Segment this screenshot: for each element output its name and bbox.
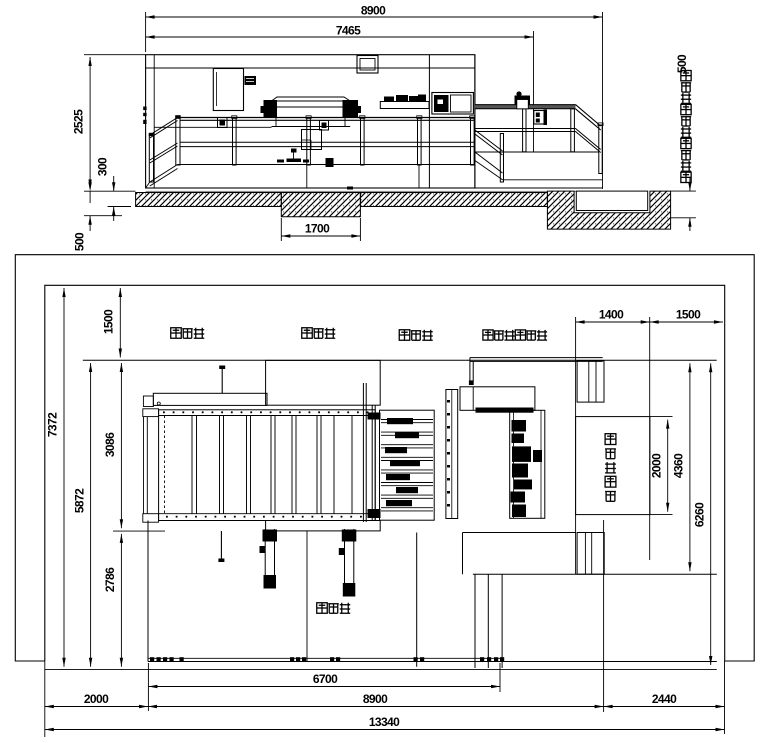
svg-text:300: 300 — [96, 157, 110, 176]
svg-text:6700: 6700 — [313, 672, 338, 686]
svg-text:7372: 7372 — [46, 412, 60, 437]
svg-text:500: 500 — [675, 54, 689, 73]
svg-text:1500: 1500 — [676, 308, 701, 322]
svg-text:2786: 2786 — [103, 567, 117, 592]
svg-text:2525: 2525 — [72, 109, 86, 134]
svg-text:8900: 8900 — [363, 692, 388, 706]
svg-text:500: 500 — [73, 232, 87, 251]
svg-text:8900: 8900 — [361, 4, 386, 18]
svg-text:1400: 1400 — [599, 308, 624, 322]
svg-text:7465: 7465 — [336, 24, 361, 38]
svg-text:2000: 2000 — [650, 453, 664, 478]
svg-text:4360: 4360 — [672, 453, 686, 478]
svg-text:5872: 5872 — [73, 488, 87, 513]
svg-text:13340: 13340 — [369, 715, 400, 729]
svg-text:1500: 1500 — [102, 309, 116, 334]
svg-text:2440: 2440 — [652, 692, 677, 706]
svg-text:1700: 1700 — [305, 222, 330, 236]
svg-text:2000: 2000 — [84, 692, 109, 706]
svg-text:6260: 6260 — [693, 502, 707, 527]
svg-text:3086: 3086 — [103, 432, 117, 457]
